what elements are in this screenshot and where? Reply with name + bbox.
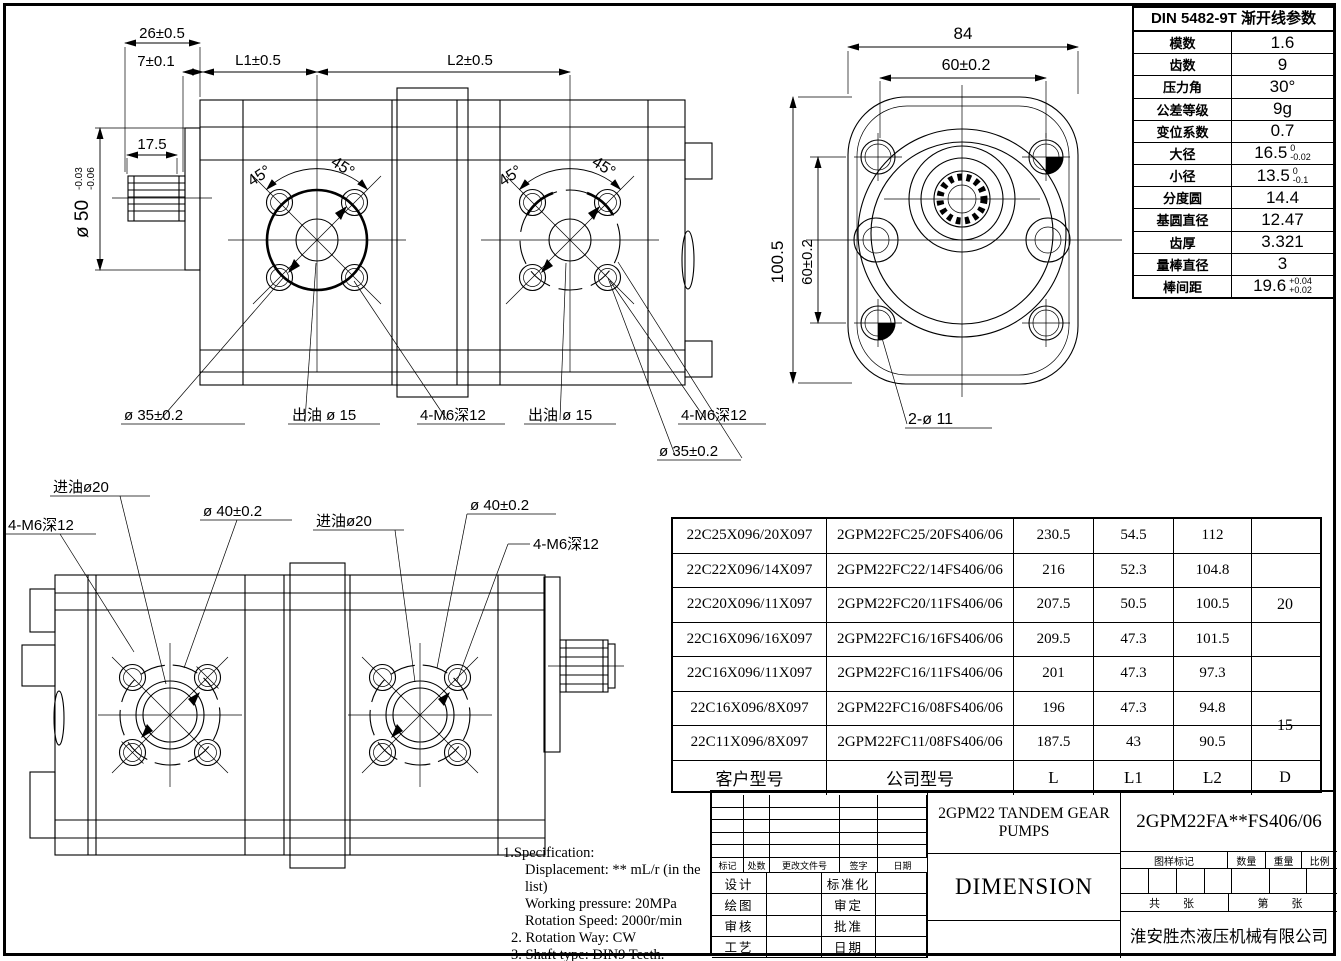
company-name: 淮安胜杰液压机械有限公司: [1120, 912, 1337, 958]
sheet-title: DIMENSION: [927, 854, 1120, 921]
dim-17-5: 17.5: [137, 136, 166, 153]
table-row: 模数1.6: [1134, 32, 1333, 54]
note-line: Working pressure: 20MPa: [503, 896, 718, 913]
label-m6-bottom-left: 4-M6深12: [8, 517, 74, 534]
top-side-view: [95, 43, 766, 460]
table-row: 压力角30°: [1134, 76, 1333, 98]
rev-header: 更改文件号: [770, 858, 840, 872]
revision-header-row: 标记 处数 更改文件号 签字 日期: [712, 858, 927, 873]
label-m6-bottom-right: 4-M6深12: [533, 536, 599, 553]
sign-label: 工艺: [712, 937, 767, 958]
note-line: Displacement: ** mL/r (in the list): [503, 862, 718, 896]
product-title: 2GPM22 TANDEM GEAR PUMPS: [927, 792, 1120, 854]
dim-60h: 60±0.2: [942, 57, 991, 74]
dim-100-5: 100.5: [768, 241, 787, 284]
dim-d50-tol-top: -0.03: [74, 167, 85, 190]
sign-label: 审定: [822, 894, 876, 915]
weight-label: 重量: [1266, 852, 1303, 868]
qty-label: 数量: [1228, 852, 1266, 868]
model-table: 22C25X096/20X0972GPM22FC25/20FS406/06230…: [671, 517, 1322, 793]
dim-d50: ø 50: [72, 200, 93, 238]
signature-grid: 设计标准化 绘图审定 审核批准 工艺日期: [712, 873, 927, 958]
dim-d50-tol-bot: -0.06: [86, 167, 97, 190]
table-row: 大径16.50-0.02: [1134, 143, 1333, 165]
rev-header: 签字: [840, 858, 878, 872]
mark-label: 图样标记: [1121, 852, 1228, 868]
angle-45-2: 45°: [328, 154, 358, 181]
specification-notes: 1.Specification: Displacement: ** mL/r (…: [503, 845, 718, 961]
note-line: 2. Rotation Way: CW: [503, 930, 718, 947]
rev-header: 处数: [744, 858, 770, 872]
d-value-group1: 20: [1250, 519, 1320, 692]
sheet-count-row: 共 张 第 张: [1120, 894, 1337, 912]
label-m6-top-left: 4-M6深12: [420, 407, 486, 424]
table-row: 齿数9: [1134, 54, 1333, 76]
dim-l1: L1±0.5: [235, 52, 281, 69]
dim-26: 26±0.5: [139, 25, 185, 42]
bottom-side-view: [5, 496, 624, 868]
drawing-annotations: 26±0.5 7±0.1 L1±0.5 L2±0.5 17.5 ø 50 -0.…: [8, 24, 991, 553]
label-inlet-left: 进油ø20: [53, 479, 109, 496]
table-row: 分度圆14.4: [1134, 187, 1333, 209]
face-view: [793, 47, 1122, 428]
table-row: 22C16X096/8X0972GPM22FC16/08FS406/061964…: [673, 692, 1320, 727]
label-m6-top-right: 4-M6深12: [681, 407, 747, 424]
scale-label: 比例: [1302, 852, 1337, 868]
dim-7: 7±0.1: [137, 53, 174, 70]
dim-60v: 60±0.2: [799, 239, 816, 285]
din-spline-table: DIN 5482-9T 渐开线参数 模数1.6 齿数9 压力角30° 公差等级9…: [1132, 6, 1335, 299]
table-row: 小径13.50-0.1: [1134, 165, 1333, 187]
title-block: 标记 处数 更改文件号 签字 日期 设计标准化 绘图审定 审核批准 工艺日期 2…: [710, 790, 1335, 956]
sign-label: 绘图: [712, 894, 767, 915]
angle-45-4: 45°: [589, 154, 619, 181]
label-d40-right: ø 40±0.2: [470, 497, 529, 514]
label-outlet-left: 出油 ø 15: [292, 407, 356, 424]
drawing-sheet: 26±0.5 7±0.1 L1±0.5 L2±0.5 17.5 ø 50 -0.…: [0, 0, 1341, 961]
d-value-group2: 15: [1250, 692, 1320, 761]
label-d35-left: ø 35±0.2: [124, 407, 183, 424]
note-line: Rotation Speed: 2000r/min: [503, 913, 718, 930]
marks-header-row: 图样标记 数量 重量 比例: [1120, 852, 1337, 869]
table-row: 量棒直径3: [1134, 254, 1333, 276]
table-row: 公差等级9g: [1134, 99, 1333, 121]
sign-label: 设计: [712, 873, 767, 894]
sign-label: 审核: [712, 916, 767, 937]
empty-box: [927, 921, 1120, 958]
note-line: 1.Specification:: [503, 845, 718, 862]
sign-label: 日期: [822, 937, 876, 958]
table-row: 22C11X096/8X0972GPM22FC11/08FS406/06187.…: [673, 726, 1320, 761]
marks-cells-row: [1120, 869, 1337, 894]
table-row: 棒间距19.6+0.04+0.02: [1134, 276, 1333, 297]
sheet-index: 第 张: [1229, 894, 1337, 911]
table-row: 22C16X096/16X0972GPM22FC16/16FS406/06209…: [673, 623, 1320, 658]
table-row: 22C16X096/11X0972GPM22FC16/11FS406/06201…: [673, 657, 1320, 692]
note-line: 3. Shaft type: DIN9 Teeth.: [503, 947, 718, 961]
label-outlet-right: 出油 ø 15: [528, 407, 592, 424]
rev-header: 日期: [878, 858, 927, 872]
dim-84: 84: [954, 24, 973, 43]
label-d35-right: ø 35±0.2: [659, 443, 718, 460]
sign-label: 标准化: [822, 873, 876, 894]
din-table-title: DIN 5482-9T 渐开线参数: [1134, 8, 1333, 32]
sheet-total: 共 张: [1121, 894, 1229, 911]
table-row: 22C22X096/14X0972GPM22FC22/14FS406/06216…: [673, 554, 1320, 589]
label-2d11: 2-ø 11: [908, 411, 953, 428]
table-row: 基圆直径12.47: [1134, 209, 1333, 231]
table-row: 变位系数0.7: [1134, 121, 1333, 143]
sign-label: 批准: [822, 916, 876, 937]
dim-l2: L2±0.5: [447, 52, 493, 69]
rev-header: 标记: [712, 858, 744, 872]
table-row: 齿厚3.321: [1134, 232, 1333, 254]
revision-grid: [712, 795, 927, 858]
label-d40-left: ø 40±0.2: [203, 503, 262, 520]
model-table-d-column: 20 15 D: [1250, 517, 1322, 793]
drawing-number: 2GPM22FA**FS406/06: [1120, 792, 1337, 852]
table-row: 22C25X096/20X0972GPM22FC25/20FS406/06230…: [673, 519, 1320, 554]
table-row: 22C20X096/11X0972GPM22FC20/11FS406/06207…: [673, 588, 1320, 623]
label-inlet-right: 进油ø20: [316, 513, 372, 530]
